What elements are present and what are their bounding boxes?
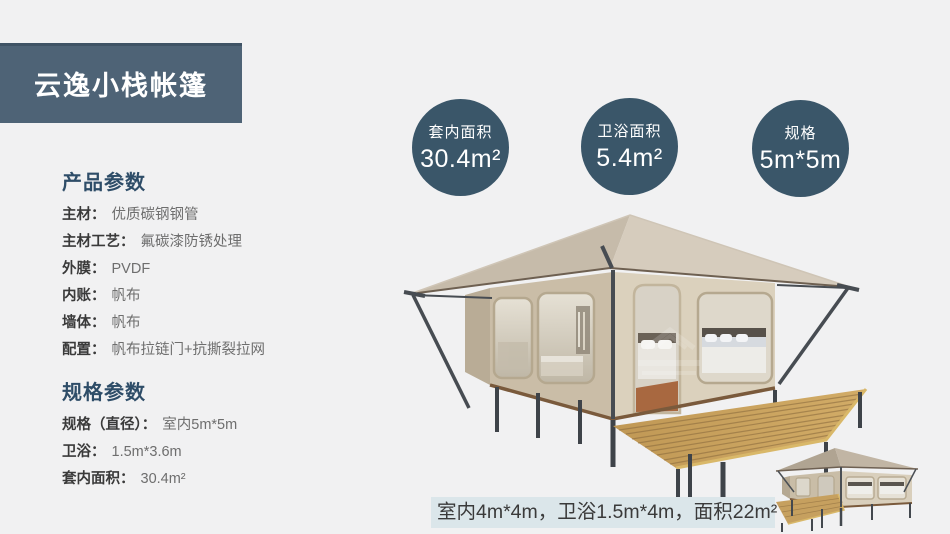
small-tent-spec-note: 室内4m*4m，卫浴1.5m*4m，面积22m²: [431, 497, 775, 528]
stat-circle-size: 规格 5m*5m: [752, 100, 849, 197]
param-value: PVDF: [112, 261, 151, 277]
small-tent-spec-text: 室内4m*4m，卫浴1.5m*4m，面积22m²: [437, 501, 777, 523]
stat-circle-bathroom-area: 卫浴面积 5.4m²: [581, 98, 678, 195]
param-label: 墙体：: [62, 315, 106, 331]
param-row: 内账：帆布: [62, 288, 402, 304]
stat-value: 30.4m²: [420, 145, 501, 174]
parameter-panel: 产品参数 主材：优质碳钢钢管 主材工艺：氟碳漆防锈处理 外膜：PVDF 内账：帆…: [62, 166, 402, 498]
param-label: 主材：: [62, 207, 106, 223]
param-label: 套内面积：: [62, 471, 135, 487]
stat-circle-interior-area: 套内面积 30.4m²: [412, 99, 509, 196]
stat-value: 5.4m²: [596, 144, 662, 173]
tent-side-windows: [494, 293, 594, 383]
param-value: 30.4m²: [141, 471, 186, 487]
stat-label: 套内面积: [428, 121, 492, 142]
stat-label: 规格: [784, 122, 816, 143]
tent-door: [634, 285, 680, 413]
param-row: 套内面积：30.4m²: [62, 471, 402, 487]
param-row: 主材：优质碳钢钢管: [62, 207, 402, 223]
tent-front-window: [698, 293, 772, 383]
param-row: 配置：帆布拉链门+抗撕裂拉网: [62, 342, 402, 358]
param-value: 室内5m*5m: [162, 417, 237, 433]
param-label: 卫浴：: [62, 444, 106, 460]
product-params-heading: 产品参数: [62, 166, 402, 195]
param-row: 外膜：PVDF: [62, 261, 402, 277]
param-label: 内账：: [62, 288, 106, 304]
param-row: 墙体：帆布: [62, 315, 402, 331]
param-label: 规格（直径）：: [62, 417, 156, 433]
page-title: 云逸小栈帐篷: [34, 64, 208, 103]
param-value: 1.5m*3.6m: [112, 444, 182, 460]
param-value: 帆布: [112, 315, 141, 331]
title-banner: 云逸小栈帐篷: [0, 43, 242, 123]
param-label: 主材工艺：: [62, 234, 135, 250]
param-row: 规格（直径）：室内5m*5m: [62, 417, 402, 433]
spec-params-heading: 规格参数: [62, 376, 402, 405]
param-value: 帆布: [112, 288, 141, 304]
param-value: 优质碳钢钢管: [112, 207, 199, 223]
stat-label: 卫浴面积: [597, 120, 661, 141]
param-value: 帆布拉链门+抗撕裂拉网: [112, 342, 265, 358]
param-row: 主材工艺：氟碳漆防锈处理: [62, 234, 402, 250]
small-tent-render: [762, 430, 950, 534]
product-spec-page: 云逸小栈帐篷 套内面积 30.4m² 卫浴面积 5.4m² 规格 5m*5m 产…: [0, 0, 950, 534]
small-tent-deck: [776, 494, 844, 524]
param-label: 配置：: [62, 342, 106, 358]
stat-value: 5m*5m: [760, 146, 842, 175]
param-row: 卫浴：1.5m*3.6m: [62, 444, 402, 460]
param-value: 氟碳漆防锈处理: [141, 234, 243, 250]
param-label: 外膜：: [62, 261, 106, 277]
small-tent-roof: [776, 448, 918, 471]
